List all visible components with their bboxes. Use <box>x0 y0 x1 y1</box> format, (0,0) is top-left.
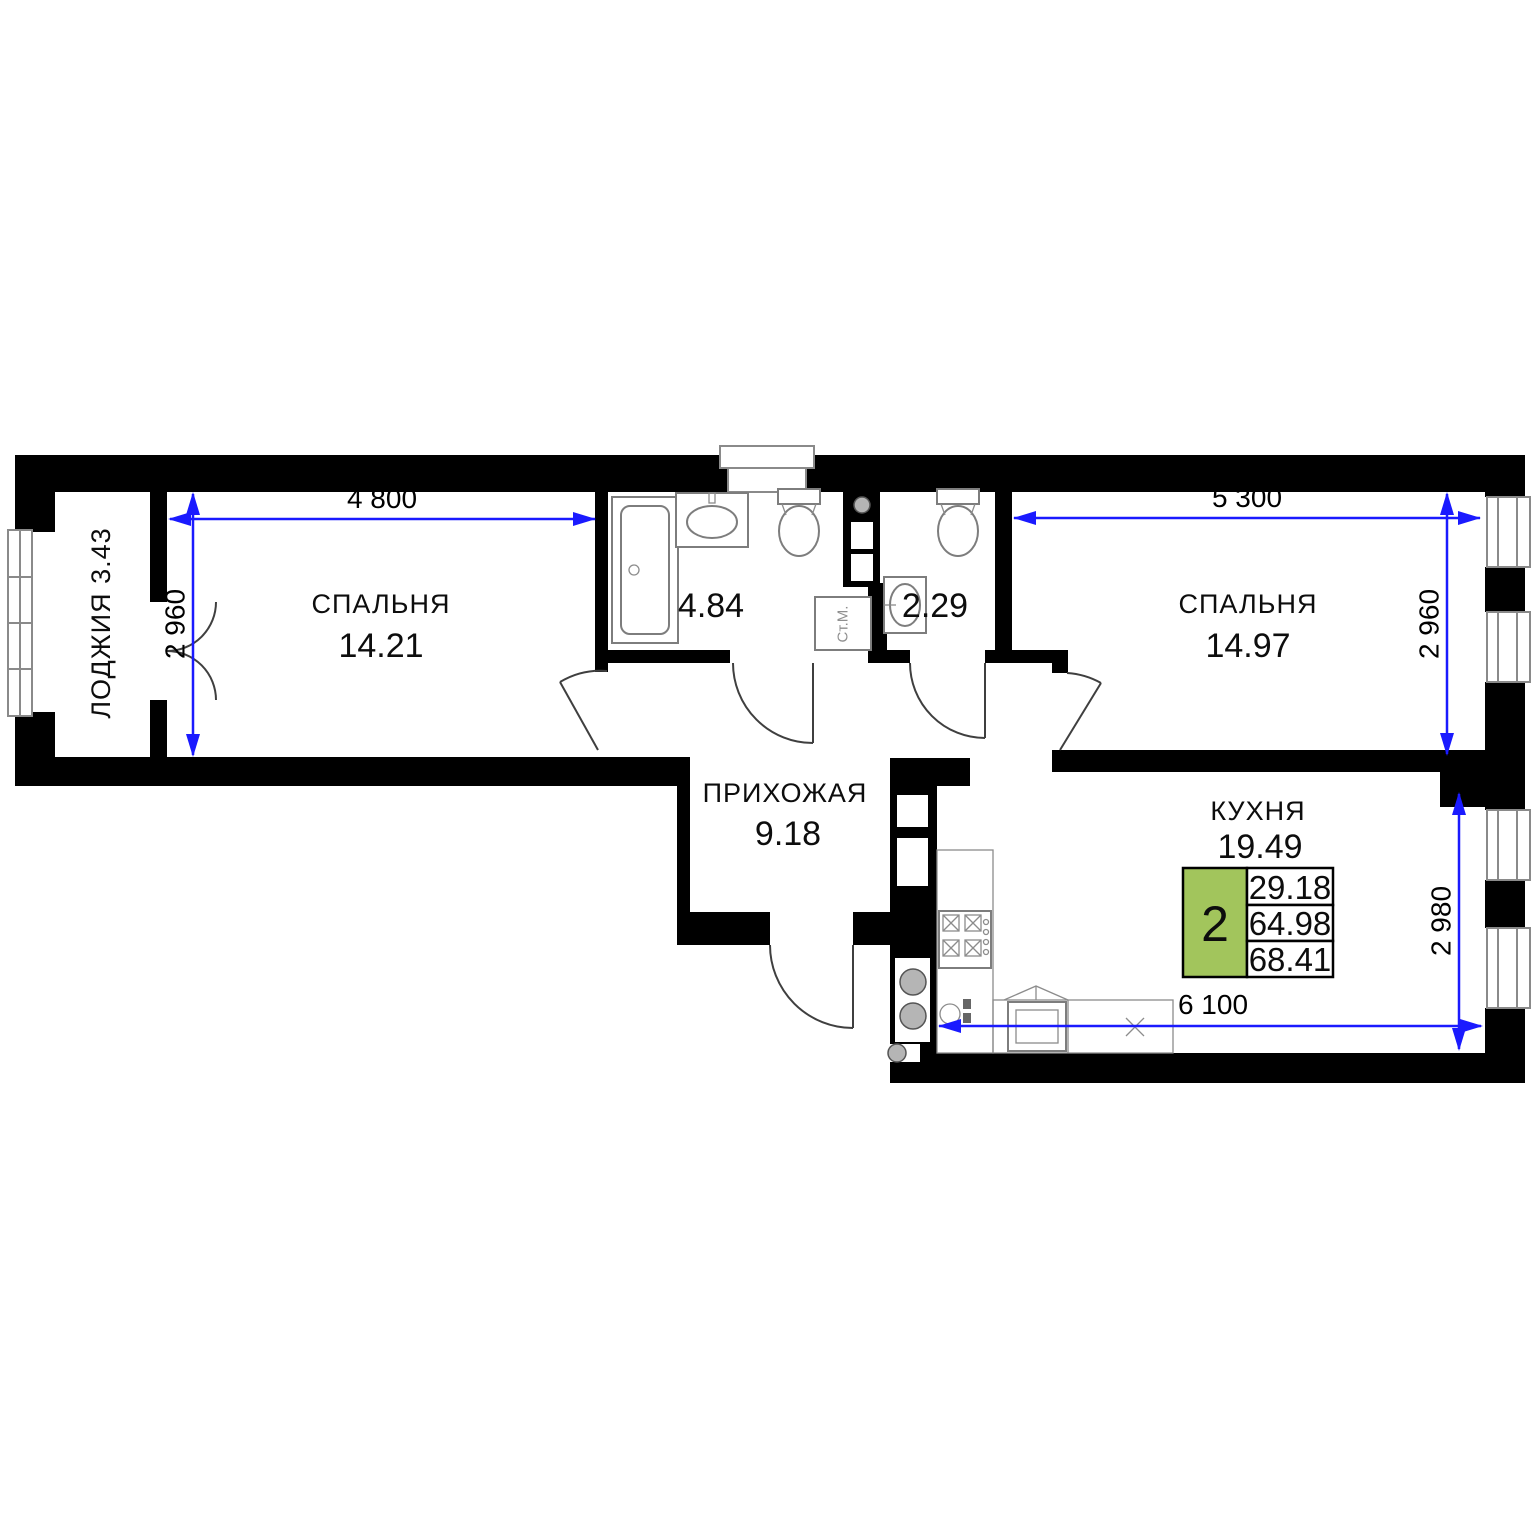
dimension-bedroom2-depth: 2 960 <box>1414 589 1445 659</box>
total-area-value: 68.41 <box>1249 941 1332 978</box>
dimension-kitchen-width: 6 100 <box>1178 989 1248 1020</box>
window-bedroom2-2 <box>1487 612 1530 682</box>
riser-pipe-icon <box>900 1003 926 1029</box>
bathroom-door-swing <box>733 663 813 743</box>
dimension-bedroom1-depth: 2 960 <box>160 589 191 659</box>
bedroom1-name: СПАЛЬНЯ <box>312 589 451 619</box>
dimension-bedroom2-width: 5 300 <box>1212 482 1282 513</box>
apartment-info-badge: 2 29.18 64.98 68.41 <box>1183 868 1333 978</box>
dimension-bedroom1-width: 4 800 <box>347 483 417 514</box>
floor-plan: Ст.М. <box>0 0 1536 1536</box>
toilet-icon <box>778 489 820 556</box>
floor-plan-page: Ст.М. <box>0 0 1536 1536</box>
kitchen-sink-icon <box>940 999 971 1024</box>
bedroom1-area: 14.21 <box>338 627 423 665</box>
stove-icon <box>939 911 991 968</box>
apartment-area-value: 64.98 <box>1249 905 1332 942</box>
dimension-kitchen-depth: 2 980 <box>1426 886 1457 956</box>
room-count: 2 <box>1201 896 1229 952</box>
bathroom-sink-icon <box>676 493 748 547</box>
entrance-door-swing <box>770 945 853 1028</box>
window-kitchen-2 <box>1487 928 1530 1008</box>
riser-pipe-icon <box>900 969 926 995</box>
bedroom2-area: 14.97 <box>1205 627 1290 665</box>
loggia-label: ЛОДЖИЯ 3.43 <box>86 527 116 718</box>
hallway-area: 9.18 <box>755 815 821 853</box>
wc-door-swing <box>910 663 985 738</box>
window-kitchen-1 <box>1487 810 1530 880</box>
bedroom2-name: СПАЛЬНЯ <box>1179 589 1318 619</box>
toilet-icon <box>937 489 979 556</box>
bedroom2-door-swing <box>1060 673 1101 750</box>
kitchen-appliance-icon <box>1004 986 1068 1051</box>
riser-pipe-icon <box>888 1044 906 1062</box>
washing-machine-icon: Ст.М. <box>815 597 871 650</box>
bathroom-vent-window <box>720 446 814 468</box>
kitchen-name: КУХНЯ <box>1210 796 1305 826</box>
wc-area: 2.29 <box>902 587 968 625</box>
window-bedroom2-1 <box>1487 497 1530 567</box>
hallway-name: ПРИХОЖАЯ <box>703 778 868 808</box>
bathtub-icon <box>612 497 678 643</box>
riser-pipe-icon <box>854 497 870 513</box>
bathroom-area: 4.84 <box>678 587 744 625</box>
bedroom1-door-swing <box>560 671 607 750</box>
washing-machine-label: Ст.М. <box>835 606 852 643</box>
walls <box>15 455 1525 1083</box>
kitchen-area: 19.49 <box>1217 828 1302 866</box>
room-labels: ЛОДЖИЯ 3.43 СПАЛЬНЯ 14.21 4.84 2.29 СПАЛ… <box>86 527 1317 866</box>
living-area-value: 29.18 <box>1249 869 1332 906</box>
